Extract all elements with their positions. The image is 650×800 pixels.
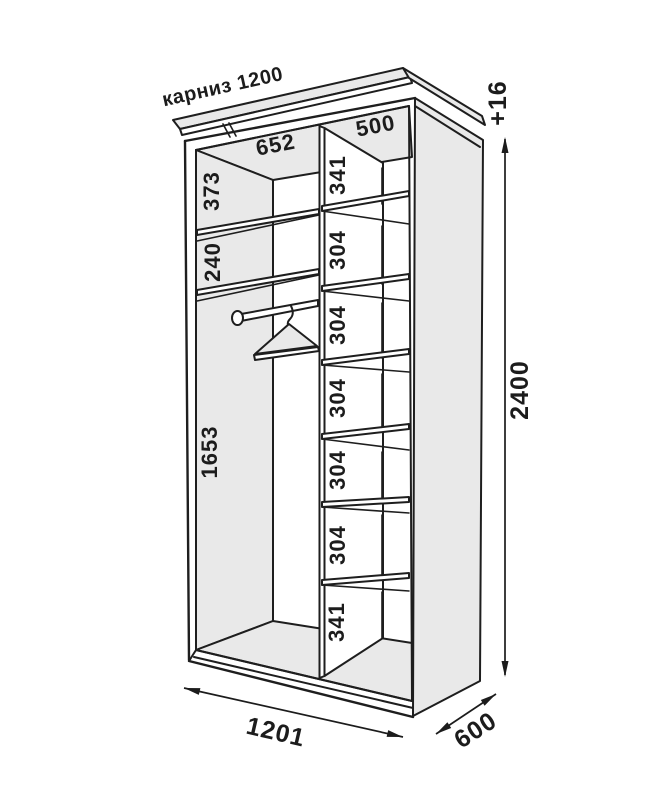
dimension-height: 2400 +16 <box>484 80 534 677</box>
shelf-height-label: 304 <box>325 525 350 565</box>
shelf-height-label: 304 <box>325 230 350 270</box>
shelf-height-label: 304 <box>325 305 350 345</box>
total-height-label: 2400 <box>506 360 534 420</box>
shelf-height-label: 304 <box>325 378 350 418</box>
wardrobe-diagram: 652 500 373 240 1653 341 304 304 304 304… <box>0 0 650 800</box>
height-tolerance-label: +16 <box>484 80 512 125</box>
shelf-height-label: 341 <box>324 602 349 642</box>
shelf-height-label: 373 <box>199 171 224 211</box>
shelf-height-label: 1653 <box>197 426 222 479</box>
shelf-height-label: 341 <box>325 155 350 195</box>
dimension-depth: 600 <box>436 694 502 754</box>
wardrobe-diagram-canvas: 652 500 373 240 1653 341 304 304 304 304… <box>0 0 650 800</box>
depth-label: 600 <box>449 706 502 754</box>
shelf-height-label: 304 <box>325 450 350 490</box>
right-side-wall <box>413 98 483 716</box>
total-width-label: 1201 <box>244 712 308 753</box>
cornice-joint-tick <box>229 123 236 136</box>
shelf-height-label: 240 <box>200 242 225 282</box>
